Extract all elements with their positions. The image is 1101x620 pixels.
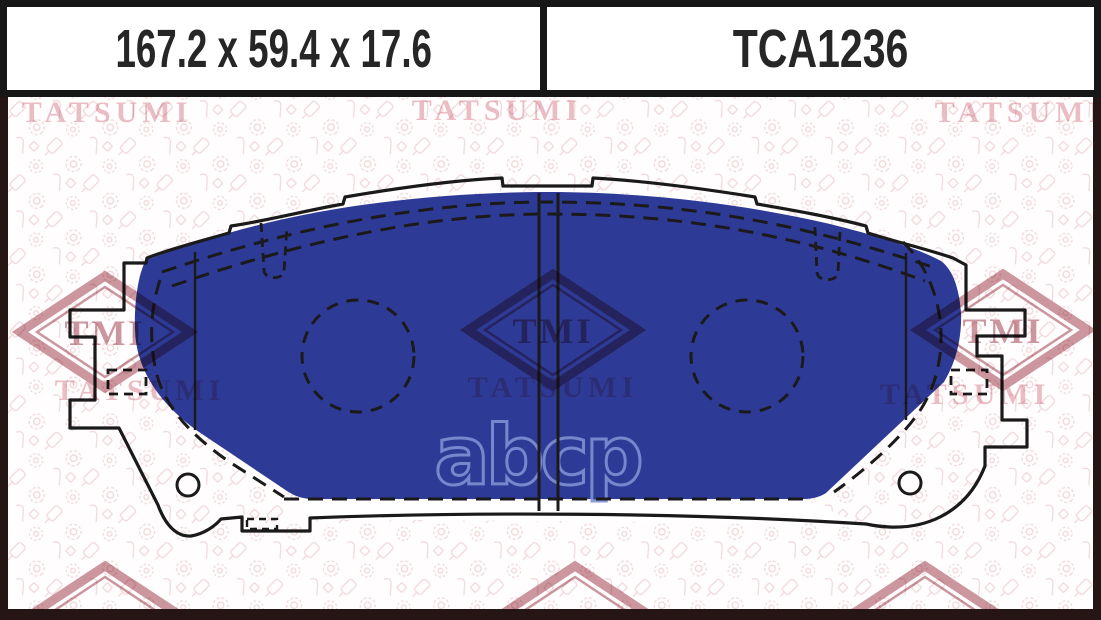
- brand-watermark-text: TATSUMI: [880, 378, 1051, 411]
- tmi-logo-text: TMI: [535, 603, 616, 609]
- tmi-logo-text: TMI: [65, 313, 146, 353]
- part-number-label: TCA1236: [733, 18, 909, 80]
- right-mounting-hole: [899, 472, 921, 494]
- brand-watermark-text: TATSUMI: [55, 374, 226, 407]
- header-bar: 167.2 x 59.4 x 17.6 TCA1236: [0, 0, 1101, 97]
- brake-pad-technical-drawing: abcp: [8, 97, 1093, 609]
- brand-watermark-text: TATSUMI: [22, 97, 193, 129]
- dimensions-cell: 167.2 x 59.4 x 17.6: [7, 7, 547, 90]
- part-number-cell: TCA1236: [547, 7, 1094, 90]
- product-image-area: abcp: [0, 97, 1101, 620]
- brand-watermark-text: TATSUMI: [935, 97, 1093, 129]
- tmi-logo-text: TMI: [963, 311, 1044, 351]
- tmi-logo-text: TMI: [885, 603, 966, 609]
- left-mounting-hole: [177, 474, 199, 496]
- brand-watermark-text: TATSUMI: [412, 97, 583, 127]
- tmi-logo-text: TMI: [513, 311, 594, 351]
- tmi-logo-text: TMI: [65, 603, 146, 609]
- dimensions-label: 167.2 x 59.4 x 17.6: [115, 18, 431, 80]
